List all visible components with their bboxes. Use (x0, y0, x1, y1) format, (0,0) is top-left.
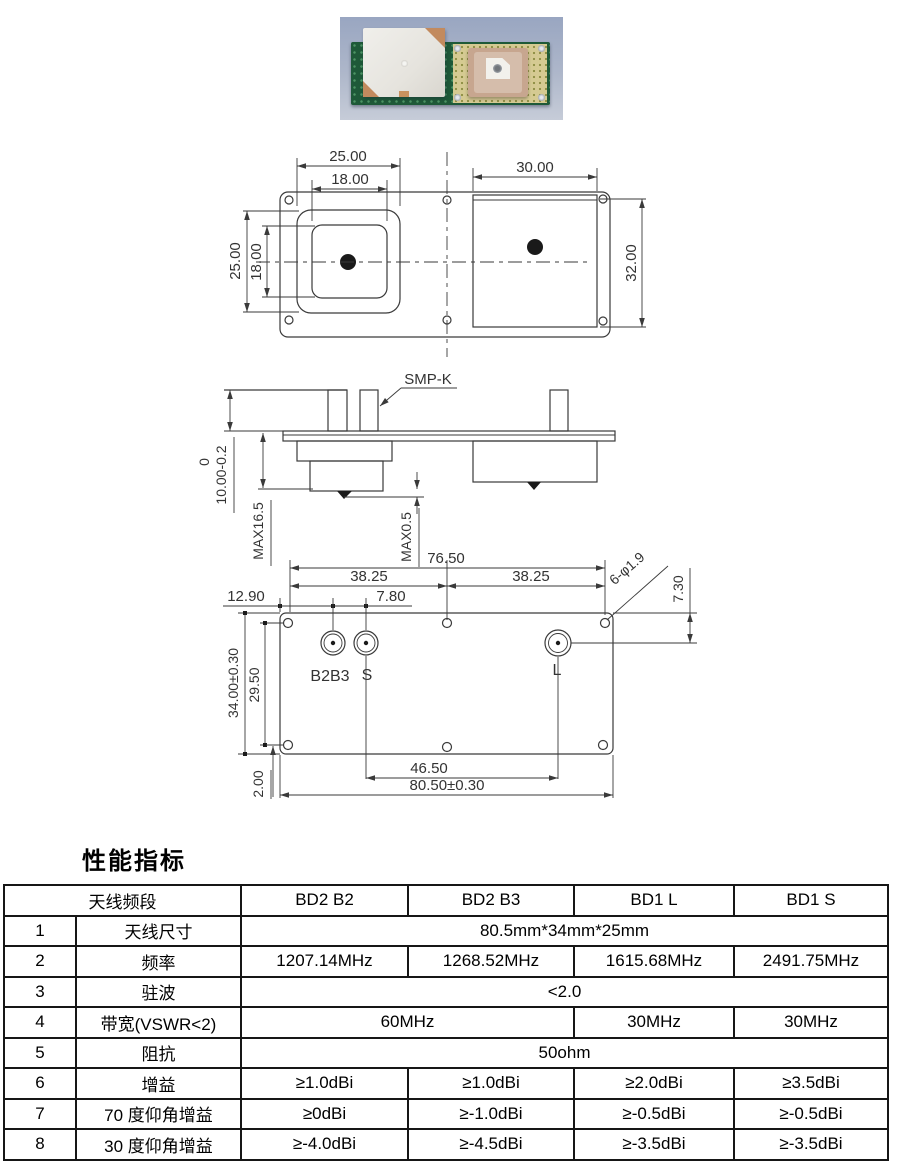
table-row: 5 阻抗 50ohm (4, 1038, 888, 1069)
dim-32-00-right: 32.00 (623, 244, 640, 282)
port-label-b2b3: B2B3 (310, 668, 349, 685)
cell-gain70: ≥-1.0dBi (408, 1099, 574, 1130)
dim-tol-upper: 0 (196, 458, 212, 466)
row-no: 1 (4, 916, 76, 947)
dim-25-00-left: 25.00 (227, 242, 244, 280)
drawing-bottom-view: 76.50 38.25 38.25 12.90 7.80 B2B3 (223, 549, 697, 799)
dim-6-holes: 6-φ1.9 (606, 549, 648, 588)
row-name: 频率 (76, 946, 241, 977)
dim-max0-5: MAX0.5 (398, 512, 414, 562)
feed-pin (401, 60, 408, 67)
cell-freq: 1268.52MHz (408, 946, 574, 977)
dim-max16-5: MAX16.5 (250, 502, 266, 560)
cell-bw: 30MHz (574, 1007, 734, 1038)
drawing-side-view: SMP-K 0 10.00-0.2 MAX16.5 MAX0.5 (196, 371, 615, 567)
row-name: 增益 (76, 1068, 241, 1099)
dim-7-30: 7.30 (670, 575, 686, 602)
screw-hole (454, 45, 461, 52)
cell-vswr: <2.0 (241, 977, 888, 1008)
header-bd1l: BD1 L (574, 885, 734, 916)
cell-gain: ≥1.0dBi (408, 1068, 574, 1099)
port-label-s: S (362, 667, 373, 684)
copper-tab (399, 91, 409, 97)
table-row: 天线频段 BD2 B2 BD2 B3 BD1 L BD1 S (4, 885, 888, 916)
feed-pin (493, 64, 502, 73)
dim-38-25-left: 38.25 (350, 568, 388, 585)
dim-34-00: 34.00±0.30 (225, 648, 241, 718)
cell-gain30: ≥-3.5dBi (734, 1129, 888, 1160)
screw-hole (538, 45, 545, 52)
cell-freq: 2491.75MHz (734, 946, 888, 977)
port-label-l: L (553, 662, 562, 679)
screw-hole (538, 94, 545, 101)
dim-7-80: 7.80 (376, 588, 405, 605)
copper-corner (425, 28, 445, 48)
table-row: 2 频率 1207.14MHz 1268.52MHz 1615.68MHz 24… (4, 946, 888, 977)
dim-18-00-top: 18.00 (331, 171, 369, 188)
drawing-top-view: 25.00 18.00 30.00 25.00 18.00 32.00 (227, 148, 646, 357)
header-bd2b3: BD2 B3 (408, 885, 574, 916)
cell-freq: 1615.68MHz (574, 946, 734, 977)
technical-drawing: 25.00 18.00 30.00 25.00 18.00 32.00 (0, 140, 900, 820)
cell-freq: 1207.14MHz (241, 946, 408, 977)
row-name: 带宽(VSWR<2) (76, 1007, 241, 1038)
cell-gain70: ≥-0.5dBi (574, 1099, 734, 1130)
cell-gain30: ≥-4.5dBi (408, 1129, 574, 1160)
row-no: 6 (4, 1068, 76, 1099)
dim-80-50: 80.50±0.30 (410, 777, 485, 794)
datasheet-page: 25.00 18.00 30.00 25.00 18.00 32.00 (0, 0, 900, 1166)
table-row: 4 带宽(VSWR<2) 60MHz 30MHz 30MHz (4, 1007, 888, 1038)
table-row: 1 天线尺寸 80.5mm*34mm*25mm (4, 916, 888, 947)
dim-12-90: 12.90 (227, 588, 265, 605)
dim-18-00-left: 18.00 (248, 243, 265, 281)
table-row: 7 70 度仰角增益 ≥0dBi ≥-1.0dBi ≥-0.5dBi ≥-0.5… (4, 1099, 888, 1130)
cell-gain70: ≥0dBi (241, 1099, 408, 1130)
dim-10-00: 10.00-0.2 (213, 445, 229, 504)
dim-46-50: 46.50 (410, 760, 448, 777)
section-title: 性能指标 (82, 841, 186, 876)
row-no: 8 (4, 1129, 76, 1160)
row-name: 70 度仰角增益 (76, 1099, 241, 1130)
row-name: 驻波 (76, 977, 241, 1008)
screw-hole (454, 94, 461, 101)
smp-k-label: SMP-K (404, 371, 452, 388)
copper-corner (363, 81, 379, 97)
row-no: 3 (4, 977, 76, 1008)
cell-gain: ≥2.0dBi (574, 1068, 734, 1099)
table-row: 8 30 度仰角增益 ≥-4.0dBi ≥-4.5dBi ≥-3.5dBi ≥-… (4, 1129, 888, 1160)
table-row: 3 驻波 <2.0 (4, 977, 888, 1008)
row-name: 天线尺寸 (76, 916, 241, 947)
cell-gain30: ≥-3.5dBi (574, 1129, 734, 1160)
row-no: 7 (4, 1099, 76, 1130)
cell-impedance: 50ohm (241, 1038, 888, 1069)
cell-gain: ≥1.0dBi (241, 1068, 408, 1099)
row-no: 4 (4, 1007, 76, 1038)
header-bd1s: BD1 S (734, 885, 888, 916)
cell-size: 80.5mm*34mm*25mm (241, 916, 888, 947)
cell-gain70: ≥-0.5dBi (734, 1099, 888, 1130)
dim-30-00-top: 30.00 (516, 159, 554, 176)
row-name: 阻抗 (76, 1038, 241, 1069)
cell-bw: 60MHz (241, 1007, 574, 1038)
cell-gain: ≥3.5dBi (734, 1068, 888, 1099)
cell-gain30: ≥-4.0dBi (241, 1129, 408, 1160)
dim-2-00: 2.00 (250, 770, 266, 797)
dim-25-00-top: 25.00 (329, 148, 367, 165)
dim-76-50: 76.50 (427, 550, 465, 567)
dim-38-25-right: 38.25 (512, 568, 550, 585)
row-no: 2 (4, 946, 76, 977)
table-row: 6 增益 ≥1.0dBi ≥1.0dBi ≥2.0dBi ≥3.5dBi (4, 1068, 888, 1099)
cell-bw: 30MHz (734, 1007, 888, 1038)
product-photo (340, 17, 563, 120)
dim-29-50: 29.50 (246, 667, 262, 702)
spec-table: 天线频段 BD2 B2 BD2 B3 BD1 L BD1 S 1 天线尺寸 80… (3, 884, 889, 1161)
header-band: 天线频段 (4, 885, 241, 916)
left-patch-antenna (363, 28, 445, 97)
row-no: 5 (4, 1038, 76, 1069)
row-name: 30 度仰角增益 (76, 1129, 241, 1160)
header-bd2b2: BD2 B2 (241, 885, 408, 916)
